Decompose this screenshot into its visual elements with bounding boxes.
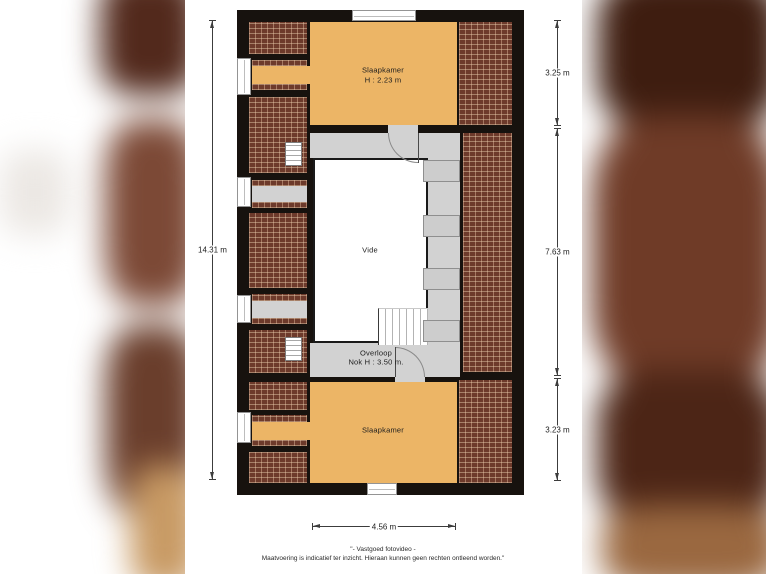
storage-box-3 — [423, 268, 460, 290]
roof-slope-hatch — [459, 380, 512, 483]
roof-slope-hatch — [252, 84, 307, 90]
landing-floor-right — [428, 158, 460, 343]
arrow-down-icon — [555, 368, 559, 375]
dimension-label: 7.63 m — [543, 248, 571, 257]
blur-panel-left — [0, 0, 185, 574]
staircase — [378, 308, 428, 345]
dimension-tick — [455, 523, 456, 530]
dimension-label: 3.23 m — [543, 425, 571, 434]
window-glass-line — [369, 489, 395, 490]
door-leaf-top-bedroom — [418, 133, 419, 163]
dimension-tick — [209, 479, 216, 480]
window-left-3 — [237, 295, 251, 323]
blur-blob — [602, 505, 766, 574]
room-label-vide: Vide — [362, 246, 378, 255]
dimension-tick — [554, 125, 561, 126]
arrow-up-icon — [210, 21, 214, 28]
dimension-bottom-width: 4.56 m — [312, 526, 456, 527]
dimension-right-top: 3.25 m — [557, 20, 558, 126]
window-left-4 — [237, 412, 251, 443]
window-top — [352, 10, 416, 21]
dimension-label: 4.56 m — [370, 522, 398, 531]
window-glass-line — [244, 297, 245, 321]
blur-blob — [592, 115, 766, 390]
room-label-bedroom-bottom: Slaapkamer — [362, 426, 404, 435]
window-bottom — [367, 483, 397, 495]
storage-box-2 — [423, 215, 460, 237]
roof-window-icon — [285, 142, 302, 166]
blur-blob — [105, 120, 185, 305]
dimension-tick — [554, 20, 561, 21]
dimension-label: 3.25 m — [543, 69, 571, 78]
arrow-down-icon — [555, 473, 559, 480]
roof-slope-hatch — [252, 202, 307, 208]
roof-slope-hatch — [252, 440, 307, 446]
bedroom-top-window-bay — [252, 66, 310, 84]
roof-slope-hatch — [249, 213, 307, 288]
window-left-1 — [237, 58, 251, 95]
arrow-up-icon — [555, 379, 559, 386]
blur-right-blobs — [582, 0, 766, 574]
landing-window-bay-2 — [252, 301, 307, 318]
landing-window-bay-1 — [252, 186, 307, 202]
arrow-left-icon — [313, 524, 320, 528]
dimension-label: 14.31 m — [196, 246, 229, 255]
dimension-tick — [554, 480, 561, 481]
footer-credit: "- Vastgoed fotovideo - — [0, 546, 766, 554]
roof-window-icon — [285, 337, 302, 361]
room-label-bedroom-top: Slaapkamer — [362, 66, 404, 75]
arrow-down-icon — [210, 472, 214, 479]
arrow-up-icon — [555, 21, 559, 28]
window-glass-line — [244, 414, 245, 441]
footer-disclaimer: Maatvoering is indicatief ter inzicht. H… — [0, 555, 766, 563]
roof-slope-hatch — [249, 452, 307, 483]
roof-slope-hatch — [249, 382, 307, 410]
bedroom-bottom-window-bay — [252, 422, 310, 440]
roof-slope-hatch — [252, 294, 307, 301]
dimension-tick — [209, 20, 216, 21]
arrow-up-icon — [555, 129, 559, 136]
dimension-right-bottom: 3.23 m — [557, 378, 558, 481]
dimension-tick — [554, 378, 561, 379]
dimension-left-total: 14.31 m — [212, 20, 213, 480]
room-label-overloop: Overloop — [360, 349, 392, 358]
landing-floor-top — [310, 133, 460, 158]
dimension-tick — [554, 375, 561, 376]
roof-slope-hatch — [249, 22, 307, 54]
room-height-bedroom-top: H : 2.23 m — [365, 76, 402, 85]
blur-left-blobs — [0, 0, 185, 574]
blur-blob — [0, 150, 70, 235]
arrow-down-icon — [555, 118, 559, 125]
dimension-tick — [312, 523, 313, 530]
blur-blob — [597, 0, 766, 130]
roof-slope-hatch — [252, 318, 307, 324]
storage-box-4 — [423, 320, 460, 342]
roof-slope-hatch — [252, 415, 307, 422]
blur-blob — [100, 0, 185, 95]
room-height-overloop: Nok H : 3.50 m. — [348, 358, 403, 367]
roof-slope-hatch — [463, 133, 512, 372]
window-left-2 — [237, 177, 251, 207]
window-glass-line — [354, 16, 414, 17]
floorplan-page: Slaapkamer H : 2.23 m Vide Overloop Nok … — [0, 0, 766, 574]
arrow-right-icon — [448, 524, 455, 528]
floor-plan: Slaapkamer H : 2.23 m Vide Overloop Nok … — [237, 10, 524, 495]
dimension-tick — [554, 128, 561, 129]
blur-panel-right — [582, 0, 766, 574]
storage-box-1 — [423, 160, 460, 182]
blur-blob — [597, 370, 766, 525]
dimension-right-middle: 7.63 m — [557, 128, 558, 376]
window-glass-line — [244, 60, 245, 93]
door-opening-top — [388, 125, 418, 133]
roof-slope-hatch — [459, 22, 512, 125]
window-glass-line — [244, 179, 245, 205]
